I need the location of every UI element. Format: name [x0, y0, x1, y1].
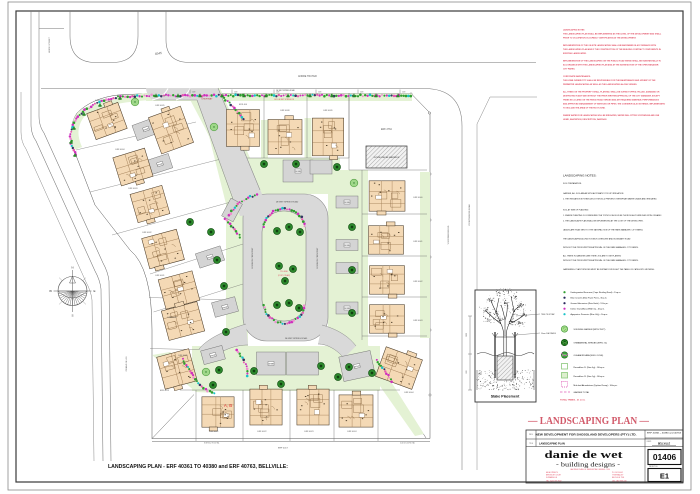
- svg-text:— LANDSCAPING PLAN —: — LANDSCAPING PLAN —: [527, 416, 649, 427]
- svg-text:DRIVE: DRIVE: [295, 171, 301, 173]
- svg-text:VOORTREKKER ROAD: VOORTREKKER ROAD: [468, 204, 471, 226]
- svg-text:SHEET:: SHEET:: [649, 482, 654, 484]
- svg-text:N: N: [71, 266, 73, 270]
- svg-text:BELLVILLE 7536: BELLVILLE 7536: [612, 477, 624, 479]
- svg-text:CITY PARKS.: CITY PARKS.: [563, 68, 576, 71]
- svg-text:SODDING GARDEN (WITH TEXT): SODDING GARDEN (WITH TEXT): [574, 328, 606, 331]
- svg-text:2549: 2549: [276, 91, 280, 93]
- svg-text:ERF 4021: ERF 4021: [209, 431, 219, 433]
- svg-text:HEIDE STREET: HEIDE STREET: [49, 36, 51, 53]
- svg-text:Undergrowted Fernrose (Cape Re: Undergrowted Fernrose (Cape Restling Ree…: [571, 291, 622, 294]
- svg-text:ERF 4022: ERF 4022: [257, 431, 267, 433]
- svg-text:ERF 4038: ERF 4038: [280, 110, 290, 112]
- svg-text:ERF 4023: ERF 4023: [304, 431, 314, 433]
- svg-text:ALL TREES ON THE PROPERTY SHAL: ALL TREES ON THE PROPERTY SHALL PLANTED,…: [563, 91, 660, 94]
- svg-text:TREES IN LOCATED ON THE FENCE: TREES IN LOCATED ON THE FENCE ROAD VERGE…: [563, 99, 660, 102]
- svg-text:ERF 4032: ERF 4032: [142, 232, 152, 234]
- svg-text:P.O. BOX 4042: P.O. BOX 4042: [612, 472, 623, 474]
- svg-text:600: 600: [466, 371, 468, 374]
- svg-text:ERF 4031: ERF 4031: [155, 275, 165, 277]
- svg-text:OLEA AFRICANA (WILD OLIVE): OLEA AFRICANA (WILD OLIVE): [574, 354, 604, 357]
- svg-text:ORNAMENTAL SHRUBS (SPEC #4): ORNAMENTAL SHRUBS (SPEC #4): [574, 342, 608, 345]
- svg-text:2549: 2549: [402, 91, 406, 93]
- svg-text:ALL TREES IN GARDENS (SEE TREE: ALL TREES IN GARDENS (SEE TREE LIST) ARE…: [563, 255, 622, 258]
- svg-text:W: W: [49, 289, 52, 293]
- svg-text:ERF 4042: ERF 4042: [413, 281, 423, 283]
- svg-text:ERF 4025: ERF 4025: [160, 390, 170, 392]
- svg-text:PROJECT NO:: PROJECT NO:: [649, 466, 658, 468]
- svg-text:E: E: [93, 289, 95, 293]
- svg-text:GARDEN, ALL SOIL AREAS WITH AU: GARDEN, ALL SOIL AREAS WITH AUTOMATIC PO…: [563, 192, 624, 195]
- svg-text:DRIVEWAY: DRIVEWAY: [202, 97, 213, 100]
- svg-text:TEL: (021) 976 7922: TEL: (021) 976 7922: [546, 480, 562, 482]
- svg-text:VOORTREKKER RD: VOORTREKKER RD: [448, 225, 450, 244]
- svg-text:ERF 4035: ERF 4035: [155, 105, 165, 107]
- svg-text:TE 4030: TE 4030: [280, 271, 288, 273]
- svg-text:Stake Placement: Stake Placement: [491, 395, 520, 399]
- svg-text:2. THE IRRIGATION SYSTEM LAYOU: 2. THE IRRIGATION SYSTEM LAYOUT SHOULD P…: [563, 198, 658, 201]
- svg-text:TOTAL TREES - 31 trees: TOTAL TREES - 31 trees: [560, 399, 586, 402]
- svg-text:LANDSCAPING NOTES: LANDSCAPING NOTES: [563, 29, 585, 32]
- svg-text:16.5 DE WET SPRING RD: 16.5 DE WET SPRING RD: [274, 99, 295, 101]
- svg-text:DE WET SPRING ROAD: DE WET SPRING ROAD: [276, 201, 299, 204]
- svg-text:Roundthen 2L (Size 5g) - 10/: Roundthen 2L (Size 5g) - 10/sq m.: [574, 375, 606, 378]
- svg-text:Dieles Grandiflora (Wild Iris): Dieles Grandiflora (Wild Iris) - 6/sq m.: [571, 308, 606, 311]
- svg-text:THE LANDSCAPING ALONG ROOIBOS: THE LANDSCAPING ALONG ROOIBOS CRESCENT A…: [563, 238, 631, 241]
- svg-text:LANDSCAPING NOTES:: LANDSCAPING NOTES:: [563, 174, 597, 178]
- svg-text:ERF 4024: ERF 4024: [347, 431, 357, 433]
- svg-text:ERF 4044: ERF 4044: [404, 392, 414, 394]
- svg-text:ERF 4041: ERF 4041: [413, 241, 423, 243]
- svg-text:ERF 4030: ERF 4030: [167, 317, 177, 319]
- svg-text:GRAND SLUIS: GRAND SLUIS: [125, 356, 128, 371]
- svg-text:DRIVE: DRIVE: [268, 364, 274, 366]
- svg-text:TO INCLUDE THE AREA OF THE ROO: TO INCLUDE THE AREA OF THE ROOT ZONE.: [563, 107, 606, 110]
- svg-text:2549: 2549: [192, 91, 196, 93]
- svg-text:ERF 4039: ERF 4039: [323, 110, 333, 112]
- svg-text:ERF 4034: ERF 4034: [115, 149, 125, 151]
- svg-text:Ground Herrenium (Rain Herb): Ground Herrenium (Rain Herb) - 12/sq m.: [571, 302, 609, 305]
- svg-text:Blue Cranels (Blue Fawn Fern): Blue Cranels (Blue Fawn Fern) - 3/sq m.: [571, 297, 608, 300]
- svg-text:SOIL AT TIME OF PLANTING:: SOIL AT TIME OF PLANTING:: [563, 209, 589, 212]
- svg-text:IMPLEMENTATION OF THE LANDSCAP: IMPLEMENTATION OF THE LANDSCAPING ON THE…: [563, 60, 661, 63]
- svg-text:WITHOUT THE PRIOR WRITTEN APPR: WITHOUT THE PRIOR WRITTEN APPROVAL OF TH…: [563, 246, 639, 249]
- svg-text:ERF 4043: ERF 4043: [413, 320, 423, 322]
- svg-text:DRIVE: DRIVE: [344, 245, 350, 247]
- svg-text:DE WET SPRING ROAD: DE WET SPRING ROAD: [285, 337, 308, 340]
- svg-text:2549: 2549: [360, 91, 364, 93]
- svg-text:AND APPROVED MANAGEMENT OF SER: AND APPROVED MANAGEMENT OF SERVICES OR P…: [563, 103, 666, 106]
- svg-text:BERGVLIET COURT: BERGVLIET COURT: [546, 474, 561, 476]
- svg-text:DESTROYED IN ANY WAY WITHOUT T: DESTROYED IN ANY WAY WITHOUT THE PRIOR W…: [563, 95, 661, 98]
- svg-text:DRIVE: DRIVE: [344, 202, 350, 204]
- svg-text:Mulched Abundations (Fynbos Ra: Mulched Abundations (Fynbos Ramp) - 10/s…: [574, 384, 618, 387]
- svg-text:S: S: [71, 314, 73, 318]
- svg-text:IMPLEMENTATION OF THE ON-SITE: IMPLEMENTATION OF THE ON-SITE LANDSCAPIN…: [563, 44, 657, 47]
- svg-text:PRIOR TO OCCUPATION OCCUPANCY: PRIOR TO OCCUPATION OCCUPANCY CERTIFICAT…: [563, 37, 637, 40]
- svg-text:Roundthen 1L (Size 4g) - 10/: Roundthen 1L (Size 4g) - 10/sq m.: [574, 366, 606, 369]
- svg-text:Agapantus Pevensis (Blue Lilly: Agapantus Pevensis (Blue Lilly) - 5/sq m…: [571, 313, 609, 316]
- svg-text:01406: 01406: [653, 452, 677, 462]
- svg-text:ERF 4017: ERF 4017: [278, 448, 289, 450]
- svg-text:NEW DEVELOPMENT FOR SHOSOLAND: NEW DEVELOPMENT FOR SHOSOLAND DEVELOPERS…: [536, 433, 637, 437]
- svg-text:ERF 4040: ERF 4040: [413, 197, 423, 199]
- svg-text:50mm DIA STAKES: 50mm DIA STAKES: [541, 332, 557, 335]
- svg-text:LANDSCAPING PLAN: LANDSCAPING PLAN: [539, 442, 565, 445]
- svg-text:THE LANDSCAPING PLAN SHALL BE: THE LANDSCAPING PLAN SHALL BE IMPLEMENTE…: [563, 33, 662, 36]
- svg-text:ROOIBOS CRESCENT: ROOIBOS CRESCENT: [252, 247, 254, 269]
- svg-text:ANDRE TRUTER: ANDRE TRUTER: [298, 75, 317, 78]
- svg-text:ERF 2764: ERF 2764: [381, 128, 392, 131]
- svg-text:DRIVE: DRIVE: [344, 308, 350, 310]
- svg-text:FUTURE CRECHE SUBSTATION: FUTURE CRECHE SUBSTATION: [374, 156, 400, 159]
- svg-text:ERF 400: ERF 400: [239, 104, 248, 106]
- svg-text:WITHOUT THE PRIOR WRITTEN APPR: WITHOUT THE PRIOR WRITTEN APPROVAL OF TH…: [563, 259, 639, 262]
- svg-text:1800: 1800: [466, 333, 468, 337]
- svg-text:HOME, SANITATION, DESCRIPTION,: HOME, SANITATION, DESCRIPTION, WASTAGE.: [563, 118, 607, 121]
- svg-text:GARDEN TOTAL: GARDEN TOTAL: [574, 391, 591, 394]
- svg-text:LANDSCAPE PLAN SENT TO THE SAT: LANDSCAPE PLAN SENT TO THE SATISFACTION …: [563, 229, 644, 232]
- svg-text:TREE TIE STRAP: TREE TIE STRAP: [541, 313, 556, 316]
- svg-text:CLIENT:: CLIENT:: [647, 441, 652, 443]
- svg-text:THE HOME OWNER/CITY SHALL BE R: THE HOME OWNER/CITY SHALL BE RESPONSIBLE…: [563, 79, 656, 82]
- svg-text:ERF 40361 - 40380 and 40763: ERF 40361 - 40380 and 40763: [647, 433, 681, 435]
- svg-text:2. THE LANDSCAPE PLAN SHALL BE: 2. THE LANDSCAPE PLAN SHALL BE IMPLEMENT…: [563, 220, 644, 223]
- svg-text:ROOIBOS CRESCENT: ROOIBOS CRESCENT: [317, 247, 319, 269]
- svg-text:CORPORATE MAINTENANCE:: CORPORATE MAINTENANCE:: [563, 75, 591, 78]
- svg-text:TITLE: TITLE: [529, 443, 533, 445]
- svg-text:- building designs -: - building designs -: [556, 462, 620, 469]
- svg-text:ACCORDANCE WITH THE LANDSCAPIN: ACCORDANCE WITH THE LANDSCAPING PLAN AND…: [563, 64, 659, 67]
- svg-text:(POST-278-AR): (POST-278-AR): [278, 274, 290, 277]
- svg-text:EXISTING LANDSCAPED.: EXISTING LANDSCAPED.: [563, 52, 587, 55]
- svg-text:THE LANDSCAPING PLAN AND IF TH: THE LANDSCAPING PLAN AND IF THE CONSTRUC…: [563, 48, 661, 51]
- svg-text:PROJ: PROJ: [529, 434, 533, 436]
- svg-text:PERIMETER LANDSCAPING AS WELL: PERIMETER LANDSCAPING AS WELL AS THE LAN…: [563, 83, 638, 86]
- svg-text:SOIL PREPARATION:: SOIL PREPARATION:: [563, 182, 582, 185]
- svg-text:E1: E1: [660, 472, 669, 481]
- svg-text:GARDENING: PLANT SPECIES MUS: GARDENING: PLANT SPECIES MUST BE SUITABL…: [563, 268, 655, 271]
- svg-text:danie de wet: danie de wet: [545, 450, 624, 461]
- svg-text:CEL: 082 9696 216: CEL: 082 9696 216: [612, 480, 627, 482]
- svg-text:1. WHERE PLANTING IS CONSIDERE: 1. WHERE PLANTING IS CONSIDERED THE TOPS…: [563, 214, 662, 217]
- svg-text:ERF 4029: ERF 4029: [178, 355, 188, 357]
- svg-text:WHERE WATER FOR LANDSCAPING WI: WHERE WATER FOR LANDSCAPING WILL BE IRRI…: [563, 114, 660, 117]
- svg-text:LANDSCAPING PLAN - ERF 40361: LANDSCAPING PLAN - ERF 40361 TO 40380 an…: [108, 464, 288, 470]
- svg-text:A, B: A, B: [224, 403, 232, 408]
- svg-text:2549: 2549: [318, 91, 322, 93]
- svg-text:2549: 2549: [234, 91, 238, 93]
- svg-text:ERF 4033: ERF 4033: [128, 188, 138, 190]
